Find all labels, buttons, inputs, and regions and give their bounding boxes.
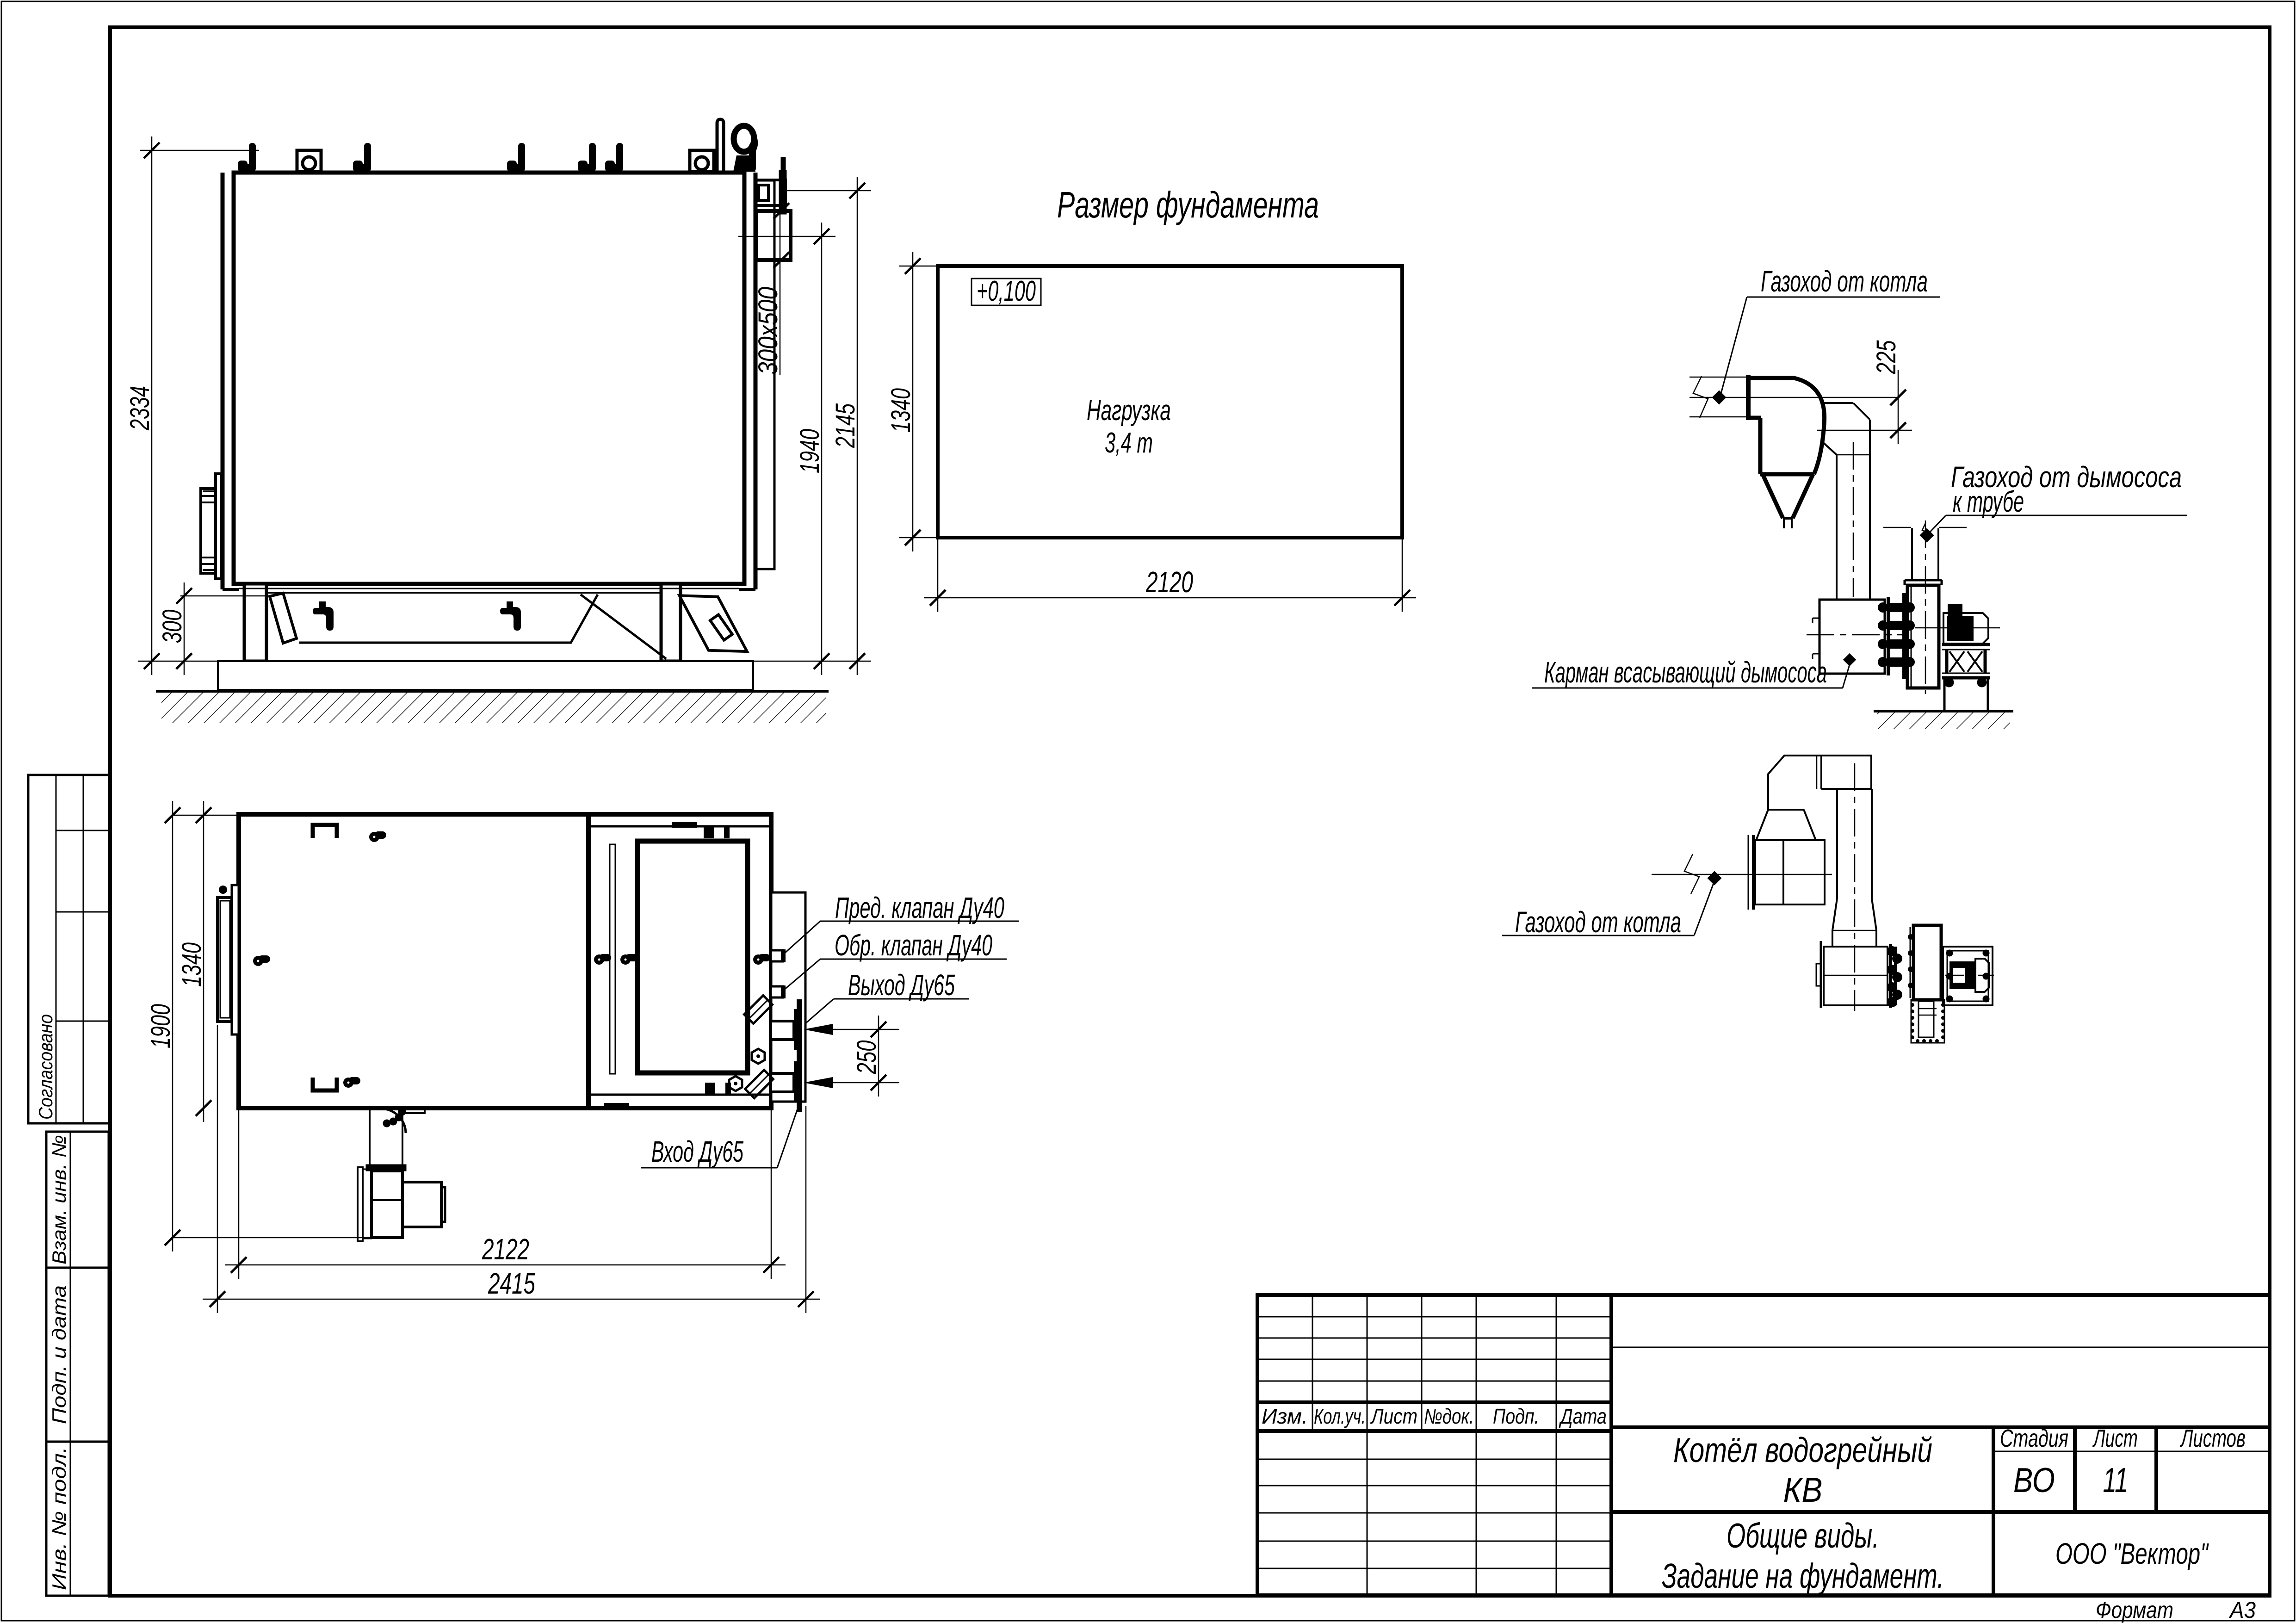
svg-text:1900: 1900 xyxy=(146,1004,176,1048)
svg-text:Инв. № подл.: Инв. № подл. xyxy=(48,1447,70,1590)
svg-text:А3: А3 xyxy=(2228,1597,2256,1623)
svg-text:1340: 1340 xyxy=(177,942,207,987)
svg-text:Подп.: Подп. xyxy=(1493,1404,1539,1428)
svg-text:Формат: Формат xyxy=(2096,1597,2173,1623)
svg-text:Котёл водогрейный: Котёл водогрейный xyxy=(1673,1431,1932,1469)
svg-text:Нагрузка: Нагрузка xyxy=(1087,395,1171,427)
svg-text:ВО: ВО xyxy=(2013,1461,2055,1499)
svg-text:250: 250 xyxy=(852,1041,882,1075)
svg-text:2122: 2122 xyxy=(482,1233,529,1266)
svg-text:Обр. клапан Ду40: Обр. клапан Ду40 xyxy=(835,929,992,962)
svg-text:КВ: КВ xyxy=(1783,1470,1823,1509)
svg-text:Задание на фундамент.: Задание на фундамент. xyxy=(1662,1556,1944,1595)
svg-text:№док.: №док. xyxy=(1424,1404,1474,1428)
svg-text:2415: 2415 xyxy=(488,1267,535,1300)
svg-text:Выход Ду65: Выход Ду65 xyxy=(848,968,955,1002)
svg-text:2120: 2120 xyxy=(1145,565,1193,599)
svg-text:1940: 1940 xyxy=(795,429,825,473)
svg-text:Общие виды.: Общие виды. xyxy=(1727,1516,1879,1555)
svg-text:Согласовано: Согласовано xyxy=(35,1014,56,1120)
svg-text:Листов: Листов xyxy=(2180,1425,2246,1452)
svg-text:Стадия: Стадия xyxy=(2000,1425,2068,1452)
svg-text:+0,100: +0,100 xyxy=(977,275,1036,307)
svg-text:Пред. клапан Ду40: Пред. клапан Ду40 xyxy=(835,891,1004,924)
svg-text:Лист: Лист xyxy=(2092,1425,2138,1452)
svg-text:Газоход от котла: Газоход от котла xyxy=(1515,905,1681,939)
svg-text:1340: 1340 xyxy=(886,388,916,433)
svg-text:Лист: Лист xyxy=(1370,1404,1417,1428)
svg-text:2145: 2145 xyxy=(830,403,860,448)
svg-text:300: 300 xyxy=(157,610,187,644)
svg-text:225: 225 xyxy=(1871,340,1901,374)
svg-text:11: 11 xyxy=(2103,1461,2129,1499)
svg-text:Размер фундамента: Размер фундамента xyxy=(1057,184,1319,225)
svg-text:Изм.: Изм. xyxy=(1262,1404,1308,1428)
svg-text:Вход Ду65: Вход Ду65 xyxy=(651,1135,743,1168)
svg-text:Кол.уч.: Кол.уч. xyxy=(1314,1404,1366,1428)
svg-text:ООО "Вектор": ООО "Вектор" xyxy=(2055,1537,2209,1570)
svg-text:2334: 2334 xyxy=(125,386,155,431)
svg-text:Карман всасывающий дымососа: Карман всасывающий дымососа xyxy=(1544,656,1827,689)
svg-text:300x500: 300x500 xyxy=(753,287,783,375)
svg-text:Взам. инв. №: Взам. инв. № xyxy=(48,1135,70,1264)
svg-text:3,4 т: 3,4 т xyxy=(1105,427,1153,459)
svg-text:Подп. и дата: Подп. и дата xyxy=(48,1285,70,1424)
svg-text:Дата: Дата xyxy=(1559,1404,1607,1428)
svg-text:к трубе: к трубе xyxy=(1953,485,2024,518)
svg-text:Газоход от котла: Газоход от котла xyxy=(1761,265,1928,298)
